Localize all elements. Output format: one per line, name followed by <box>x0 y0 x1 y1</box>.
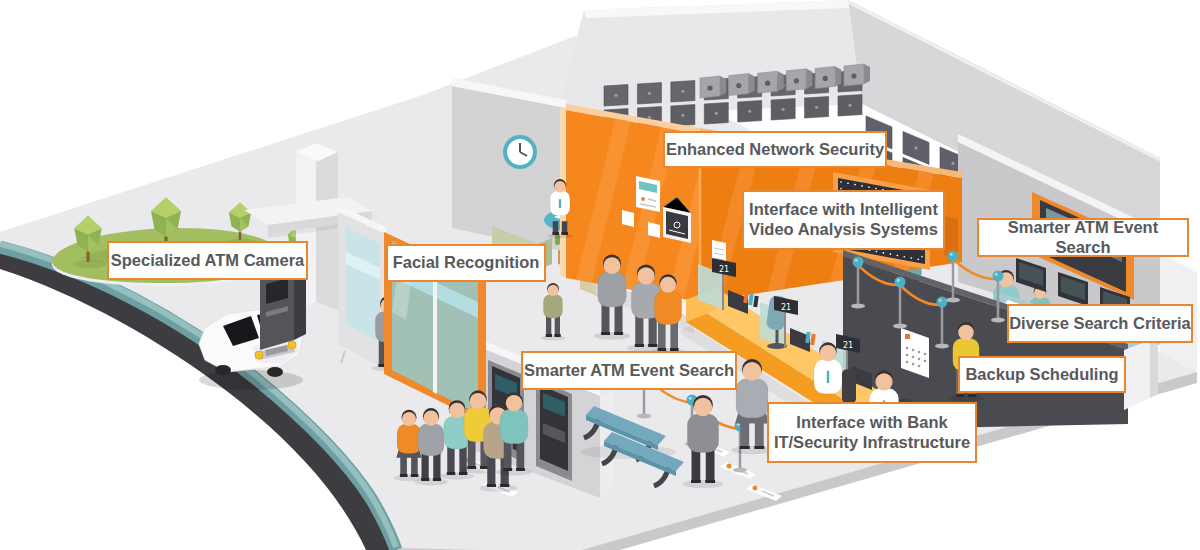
safe-box <box>738 101 762 122</box>
label-smarter-atm-event-search-bottom: Smarter ATM Event Search <box>521 351 737 390</box>
label-backup-scheduling: Backup Scheduling <box>958 356 1126 393</box>
label-interface-bank-it: Interface with Bank IT/Security Infrastr… <box>767 402 977 463</box>
ledge-safe-box <box>844 64 870 86</box>
safe-box <box>704 103 728 124</box>
svg-text:21: 21 <box>843 341 853 350</box>
label-text: Specialized ATM Camera <box>111 251 304 271</box>
label-smarter-atm-event-search-right: Smarter ATM Event Search <box>977 218 1189 257</box>
wall-clock <box>505 137 535 167</box>
safe-box <box>771 99 795 120</box>
label-text: Interface with Intelligent Video Analysi… <box>749 200 938 240</box>
ledge-safe-box <box>729 74 755 96</box>
safe-box <box>671 81 695 102</box>
svg-text:21: 21 <box>781 303 791 312</box>
label-text: Diverse Search Criteria <box>1009 314 1191 334</box>
safe-box <box>805 97 829 118</box>
label-specialized-atm-camera: Specialized ATM Camera <box>107 241 308 280</box>
label-enhanced-network-security: Enhanced Network Security <box>663 131 887 168</box>
safe-box <box>637 83 661 104</box>
svg-text:21: 21 <box>719 265 729 274</box>
safe-box <box>671 105 695 126</box>
ledge-safe-box <box>700 76 726 98</box>
label-text: Smarter ATM Event Search <box>979 218 1187 258</box>
label-text: Interface with Bank IT/Security Infrastr… <box>774 413 970 453</box>
label-text: Enhanced Network Security <box>666 140 884 160</box>
ledge-safe-box <box>815 66 841 88</box>
label-text: Facial Recognition <box>393 253 540 273</box>
safe-box <box>604 85 628 106</box>
label-diverse-search-criteria: Diverse Search Criteria <box>1007 304 1193 343</box>
label-text: Smarter ATM Event Search <box>524 361 734 381</box>
label-text: Backup Scheduling <box>965 365 1118 385</box>
safe-box <box>838 95 862 116</box>
ledge-safe-box <box>786 69 812 91</box>
bank-surveillance-diagram: 212121 Specialized ATM Camera Facial Rec… <box>0 0 1200 550</box>
label-facial-recognition: Facial Recognition <box>386 244 546 282</box>
atm-machine <box>536 379 572 481</box>
ledge-safe-box <box>758 71 784 93</box>
label-interface-intelligent-video: Interface with Intelligent Video Analysi… <box>742 190 945 250</box>
